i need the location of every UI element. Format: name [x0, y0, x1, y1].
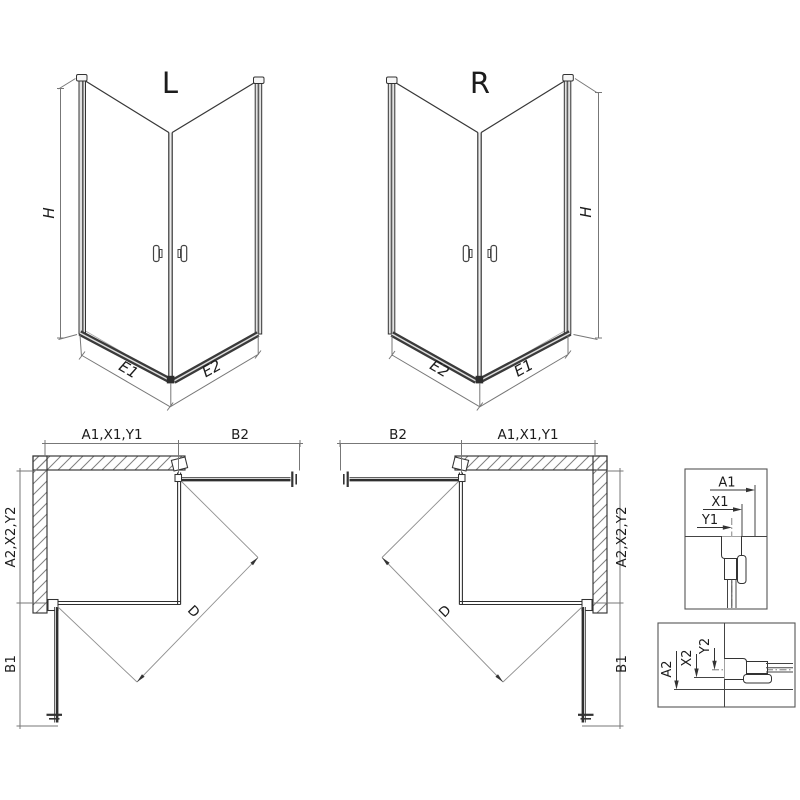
dim-label-X1: X1 [711, 495, 728, 510]
profile-cap [563, 75, 574, 82]
dim-label-B1: B1 [614, 655, 630, 673]
dim-label-B1: B1 [3, 655, 19, 673]
dim-label-B2: B2 [231, 427, 249, 443]
plan-view-right: B2 A1,X1,Y1 A2,X2,Y2 B1 D [337, 427, 630, 729]
dim-label-A2: A2 [660, 660, 675, 677]
door-handle-nub [160, 250, 163, 258]
dim-label-X2: X2 [680, 649, 695, 666]
door-handle-nub [488, 250, 491, 258]
corner-connector [476, 376, 484, 384]
tray-edge-left [459, 473, 462, 605]
tray-edge-bottom [47, 602, 181, 605]
technical-drawing-shower-enclosure: L H E1 E2 R H E2 E1 [0, 0, 800, 800]
tray-edge-bottom [459, 602, 593, 605]
drawing-canvas: L H E1 E2 R H E2 E1 [0, 0, 800, 800]
door-handle [181, 246, 187, 262]
wall-left-hatched [33, 456, 47, 613]
door-handle [491, 246, 497, 262]
dim-label-A1X1Y1: A1,X1,Y1 [497, 427, 558, 443]
plan-view-left: A1,X1,Y1 B2 A2,X2,Y2 B1 D [3, 427, 303, 729]
profile-cap [77, 75, 88, 82]
glass-clamp-section [747, 662, 768, 674]
perspective-view-right: R H E2 E1 [387, 66, 603, 411]
glass-pane [172, 82, 255, 380]
glass-clamp-section [725, 559, 737, 580]
dimension-H [57, 79, 77, 340]
profile-side-piece [744, 675, 772, 684]
profile-cap [387, 77, 398, 84]
detail-wall-profile-side: A2 X2 Y2 [658, 623, 795, 707]
diagonal-dim-line [382, 558, 503, 683]
wall-profile-section [722, 537, 742, 559]
door-swing-line [58, 482, 259, 683]
profile-side-piece [738, 556, 747, 584]
door-handle [463, 246, 469, 262]
tray-edge-right [178, 473, 181, 605]
hinge-top [175, 475, 182, 482]
variant-label: R [470, 66, 490, 100]
wall-top-hatched [33, 456, 185, 470]
dim-label-D: D [436, 602, 455, 621]
door-swing-line [382, 482, 583, 683]
hinge-top [459, 475, 466, 482]
dim-label-H: H [577, 206, 595, 217]
dim-label-Y1: Y1 [701, 513, 718, 528]
glass-pane [481, 81, 564, 379]
wall-right-hatched [593, 456, 607, 613]
glass-pane [395, 82, 478, 380]
dim-label-Y2: Y2 [698, 638, 713, 655]
wall-top-hatched [455, 456, 607, 470]
dim-label-H: H [40, 207, 58, 218]
perspective-view-left: L H E1 E2 [40, 66, 264, 411]
detail-wall-profile-top: A1 X1 Y1 [685, 469, 767, 609]
glass-pane [86, 81, 169, 379]
door-handle-nub [178, 250, 181, 258]
profile-cap [254, 77, 265, 84]
dim-label-A2X2Y2: A2,X2,Y2 [614, 506, 630, 567]
dim-label-A1: A1 [718, 476, 735, 491]
corner-connector [167, 376, 175, 384]
variant-label: L [162, 66, 178, 100]
dim-label-A2X2Y2: A2,X2,Y2 [3, 506, 19, 567]
dim-label-D: D [184, 602, 203, 621]
dim-label-A1X1Y1: A1,X1,Y1 [81, 427, 142, 443]
diagonal-dim-line [137, 558, 258, 683]
door-handle [154, 246, 160, 262]
dim-label-B2: B2 [389, 427, 407, 443]
door-handle-nub [470, 250, 473, 258]
